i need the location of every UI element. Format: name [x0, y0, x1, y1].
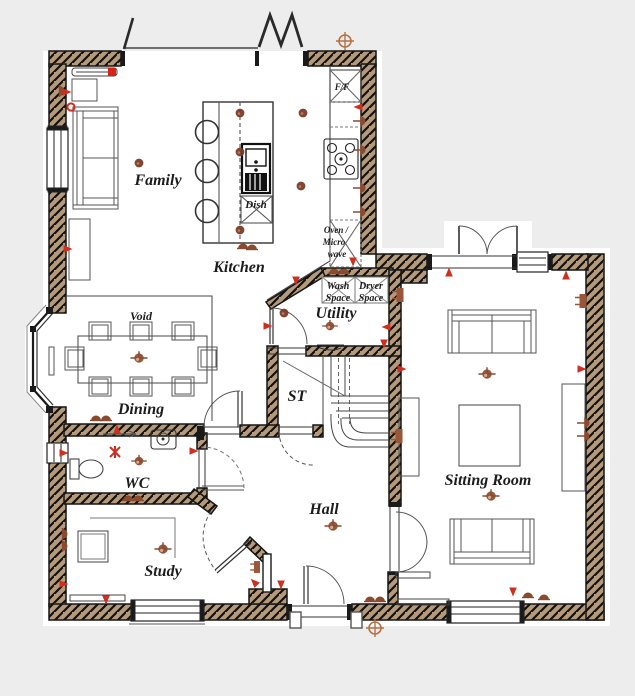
svg-text:Dish: Dish — [244, 199, 266, 211]
svg-text:Hall: Hall — [308, 501, 339, 518]
svg-text:Void: Void — [130, 309, 153, 323]
svg-text:Wash: Wash — [327, 281, 350, 292]
svg-text:Space: Space — [359, 293, 384, 304]
svg-text:Sitting Room: Sitting Room — [445, 472, 532, 489]
svg-text:wave: wave — [328, 249, 347, 259]
svg-text:ST: ST — [288, 388, 308, 405]
svg-text:Kitchen: Kitchen — [212, 259, 265, 276]
svg-text:Dryer: Dryer — [358, 281, 383, 292]
svg-text:Space: Space — [326, 293, 351, 304]
svg-text:Utility: Utility — [316, 305, 358, 322]
svg-text:Oven /: Oven / — [324, 225, 350, 235]
svg-text:Study: Study — [144, 563, 182, 580]
svg-text:WC: WC — [125, 475, 150, 492]
svg-text:Family: Family — [133, 172, 182, 189]
svg-text:Micro: Micro — [322, 237, 346, 247]
svg-text:F/F: F/F — [334, 82, 350, 92]
svg-text:Dining: Dining — [117, 401, 164, 418]
